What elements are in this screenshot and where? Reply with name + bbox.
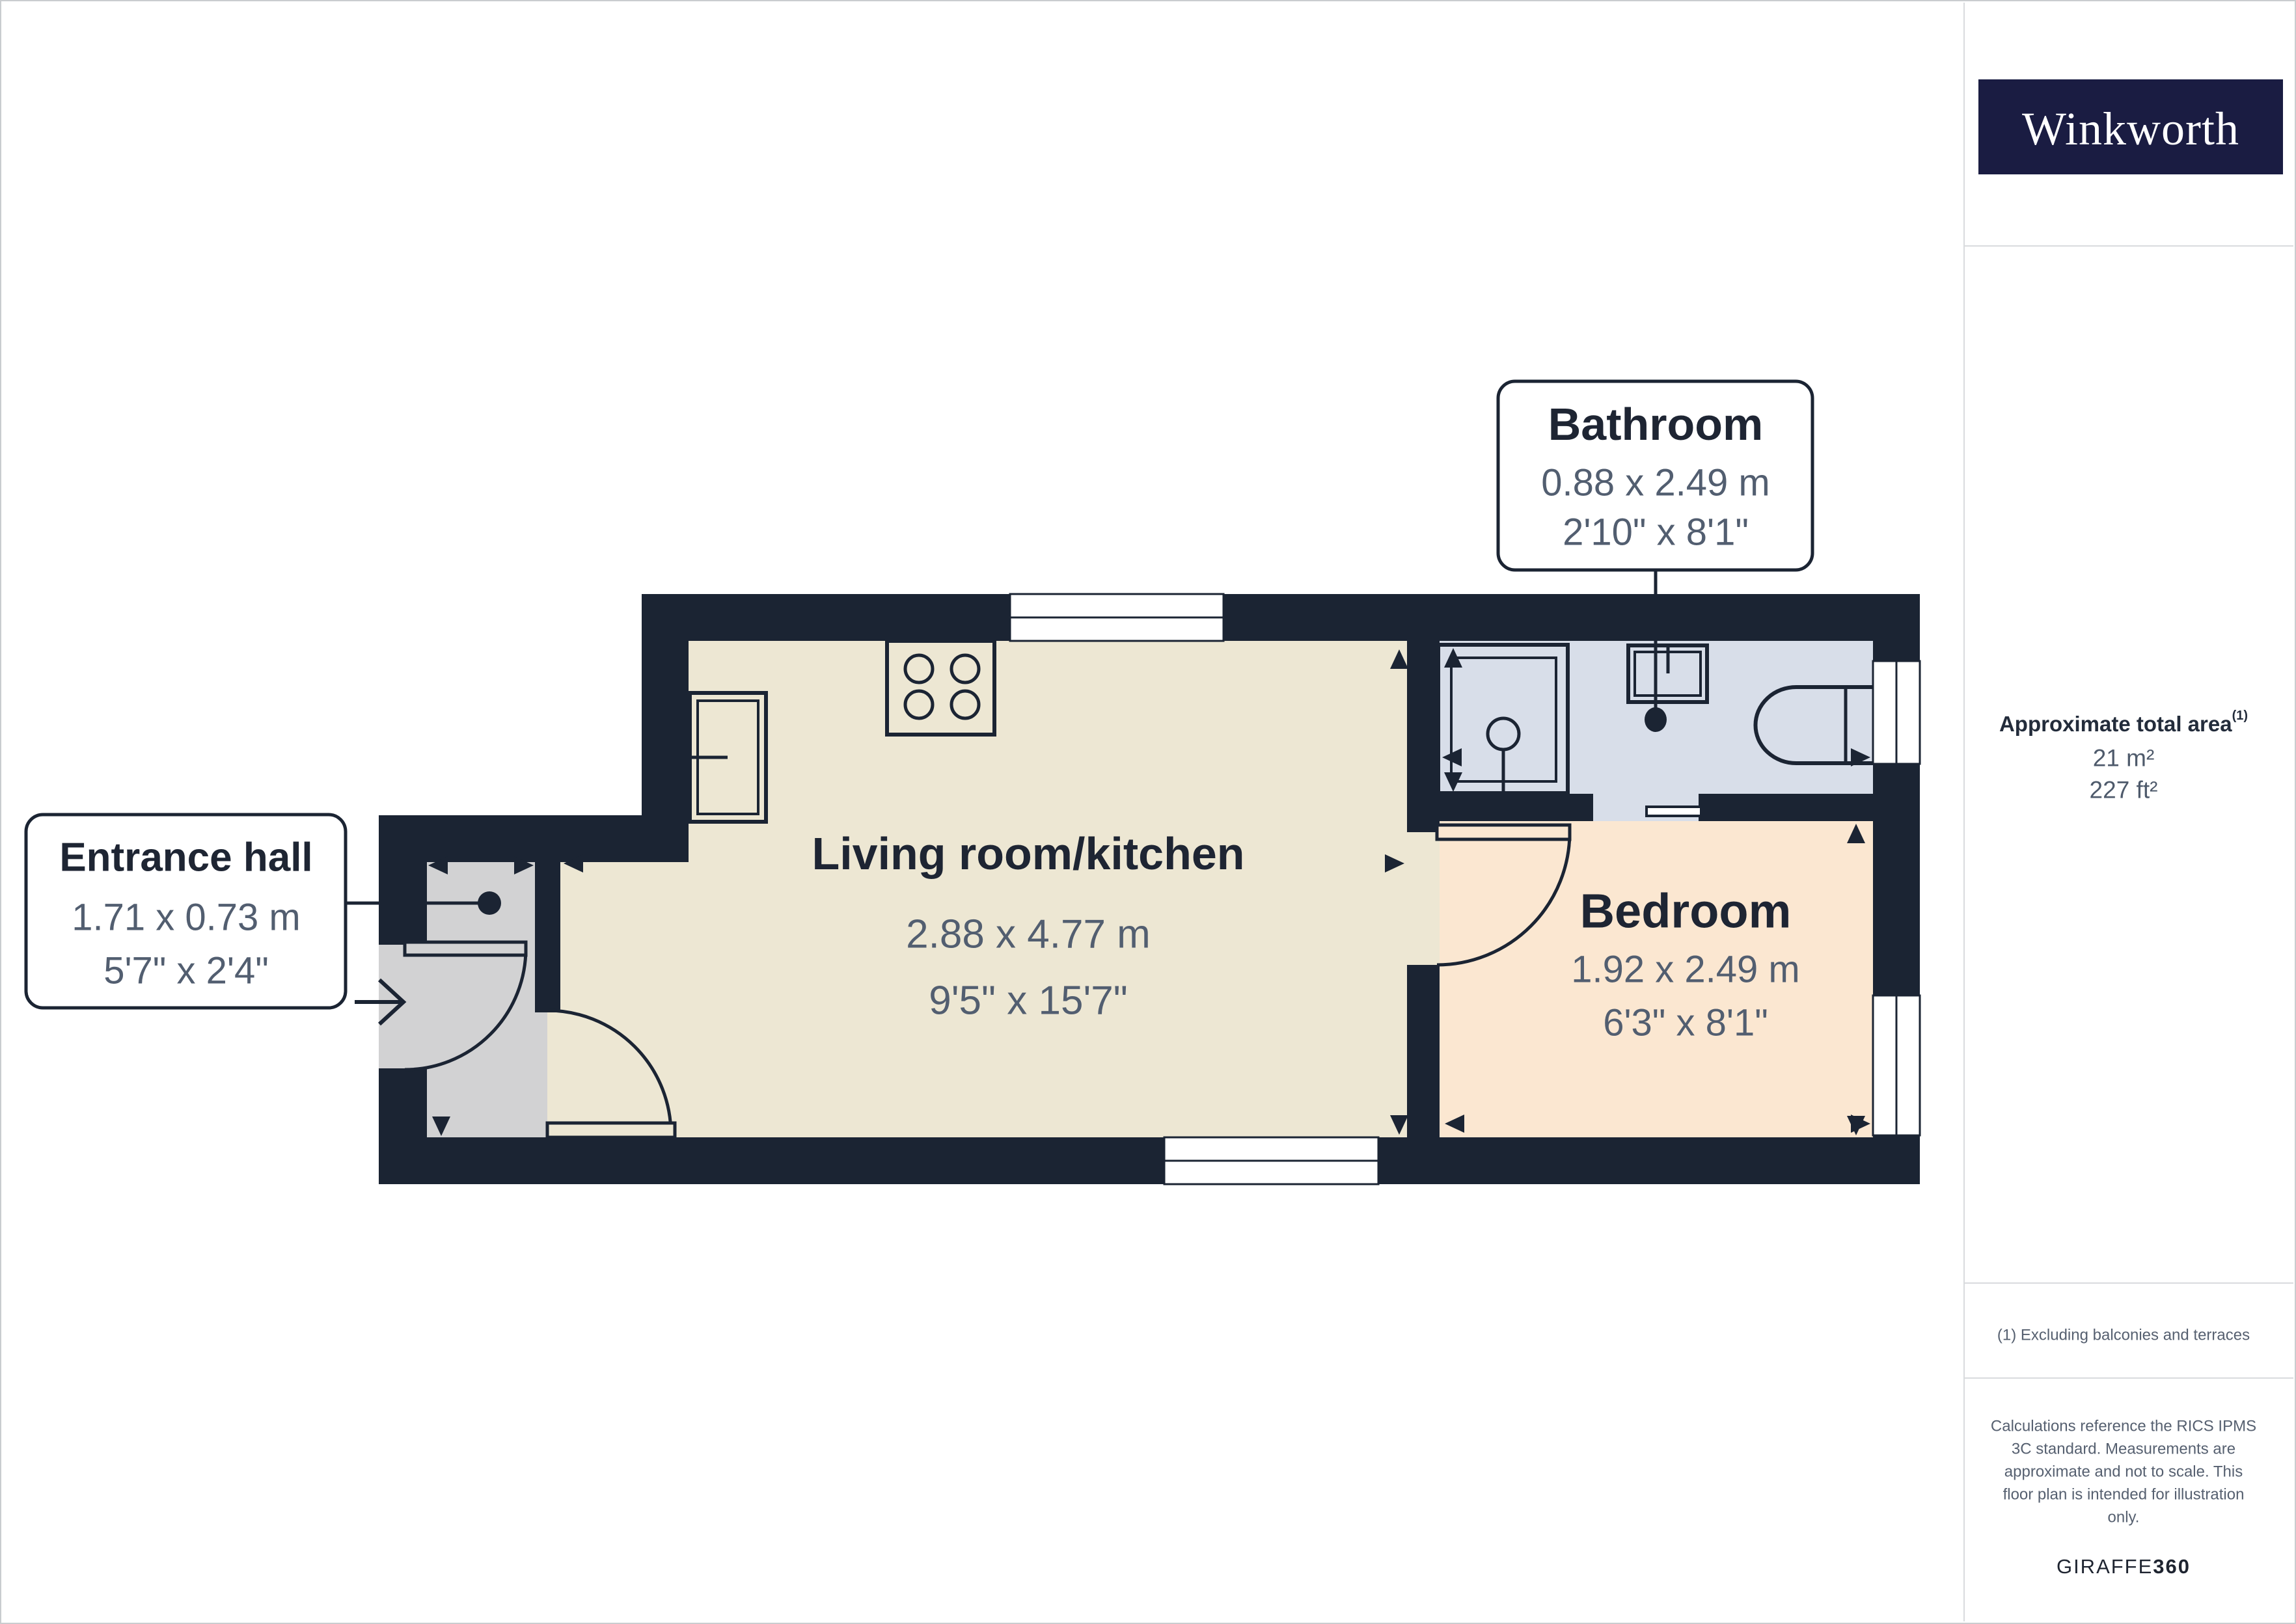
disclaimer-line: only.: [2108, 1509, 2140, 1526]
living-room-metric: 2.88 x 4.77 m: [906, 912, 1151, 957]
floorplan-canvas: Living room/kitchen 2.88 x 4.77 m 9'5" x…: [0, 0, 2296, 1624]
wall-hall-left-lower: [379, 1068, 427, 1137]
entrance-metric: 1.71 x 0.73 m: [72, 897, 300, 939]
bathroom-label: Bathroom: [1548, 399, 1764, 450]
floorplan-page: Living room/kitchen 2.88 x 4.77 m 9'5" x…: [0, 0, 2296, 1624]
bedroom-metric: 1.92 x 2.49 m: [1571, 949, 1799, 991]
wall-bottom-right: [1378, 1137, 1920, 1184]
wall-top-right: [1223, 594, 1920, 641]
total-area-sup: (1): [2232, 709, 2248, 723]
total-area-imperial: 227 ft²: [2090, 777, 2158, 804]
wall-bath-bottom-left: [1440, 794, 1593, 821]
entrance-door-leaf: [405, 942, 526, 955]
wall-bottom-left: [379, 1137, 1164, 1184]
total-area-label: Approximate total area(1): [1999, 709, 2248, 736]
bedroom-doorway-floor: [1407, 832, 1440, 965]
wall-hall-living-divider: [535, 862, 560, 1012]
disclaimer-line: approximate and not to scale. This: [2004, 1463, 2243, 1481]
bathroom-metric: 0.88 x 2.49 m: [1541, 462, 1770, 504]
wall-living-bath-divider: [1407, 641, 1440, 832]
winkworth-logo-text: Winkworth: [2022, 103, 2239, 155]
bathroom-imperial: 2'10" x 8'1": [1563, 511, 1749, 554]
giraffe360-suffix: 360: [2153, 1555, 2191, 1578]
wall-bath-bottom-right: [1699, 794, 1873, 821]
footnote: (1) Excluding balconies and terraces: [1997, 1327, 2250, 1344]
disclaimer-line: Calculations reference the RICS IPMS: [1991, 1418, 2256, 1435]
living-door-leaf: [547, 1123, 675, 1137]
wall-right-upper: [1873, 594, 1920, 661]
living-room-imperial: 9'5" x 15'7": [929, 979, 1128, 1023]
entrance-leader-dot: [478, 891, 501, 915]
entrance-label: Entrance hall: [59, 835, 312, 880]
wall-living-bed-divider: [1407, 965, 1440, 1137]
entrance-imperial: 5'7" x 2'4": [103, 950, 269, 992]
bathroom-leader-dot: [1645, 707, 1667, 732]
bedroom-door-leaf: [1437, 825, 1570, 839]
bedroom-imperial: 6'3" x 8'1": [1603, 1002, 1768, 1044]
hall-living-doorway-floor: [535, 1012, 547, 1137]
wall-right-middle: [1873, 764, 1920, 995]
giraffe360-brand: GIRAFFE: [2057, 1555, 2153, 1578]
disclaimer-line: 3C standard. Measurements are: [2012, 1441, 2235, 1458]
total-area-metric: 21 m²: [2093, 745, 2155, 772]
wall-living-left: [642, 641, 689, 815]
bedroom-label: Bedroom: [1580, 884, 1792, 938]
total-area-label-text: Approximate total area: [1999, 712, 2232, 736]
living-room-label: Living room/kitchen: [812, 828, 1244, 879]
wall-top-left: [642, 594, 1010, 641]
bathroom-door-leaf: [1647, 807, 1701, 816]
entrance-doorway-floor: [379, 945, 427, 1068]
wall-hall-top: [379, 815, 689, 862]
disclaimer-line: floor plan is intended for illustration: [2003, 1486, 2245, 1504]
giraffe360-credit: GIRAFFE360: [2057, 1555, 2191, 1578]
